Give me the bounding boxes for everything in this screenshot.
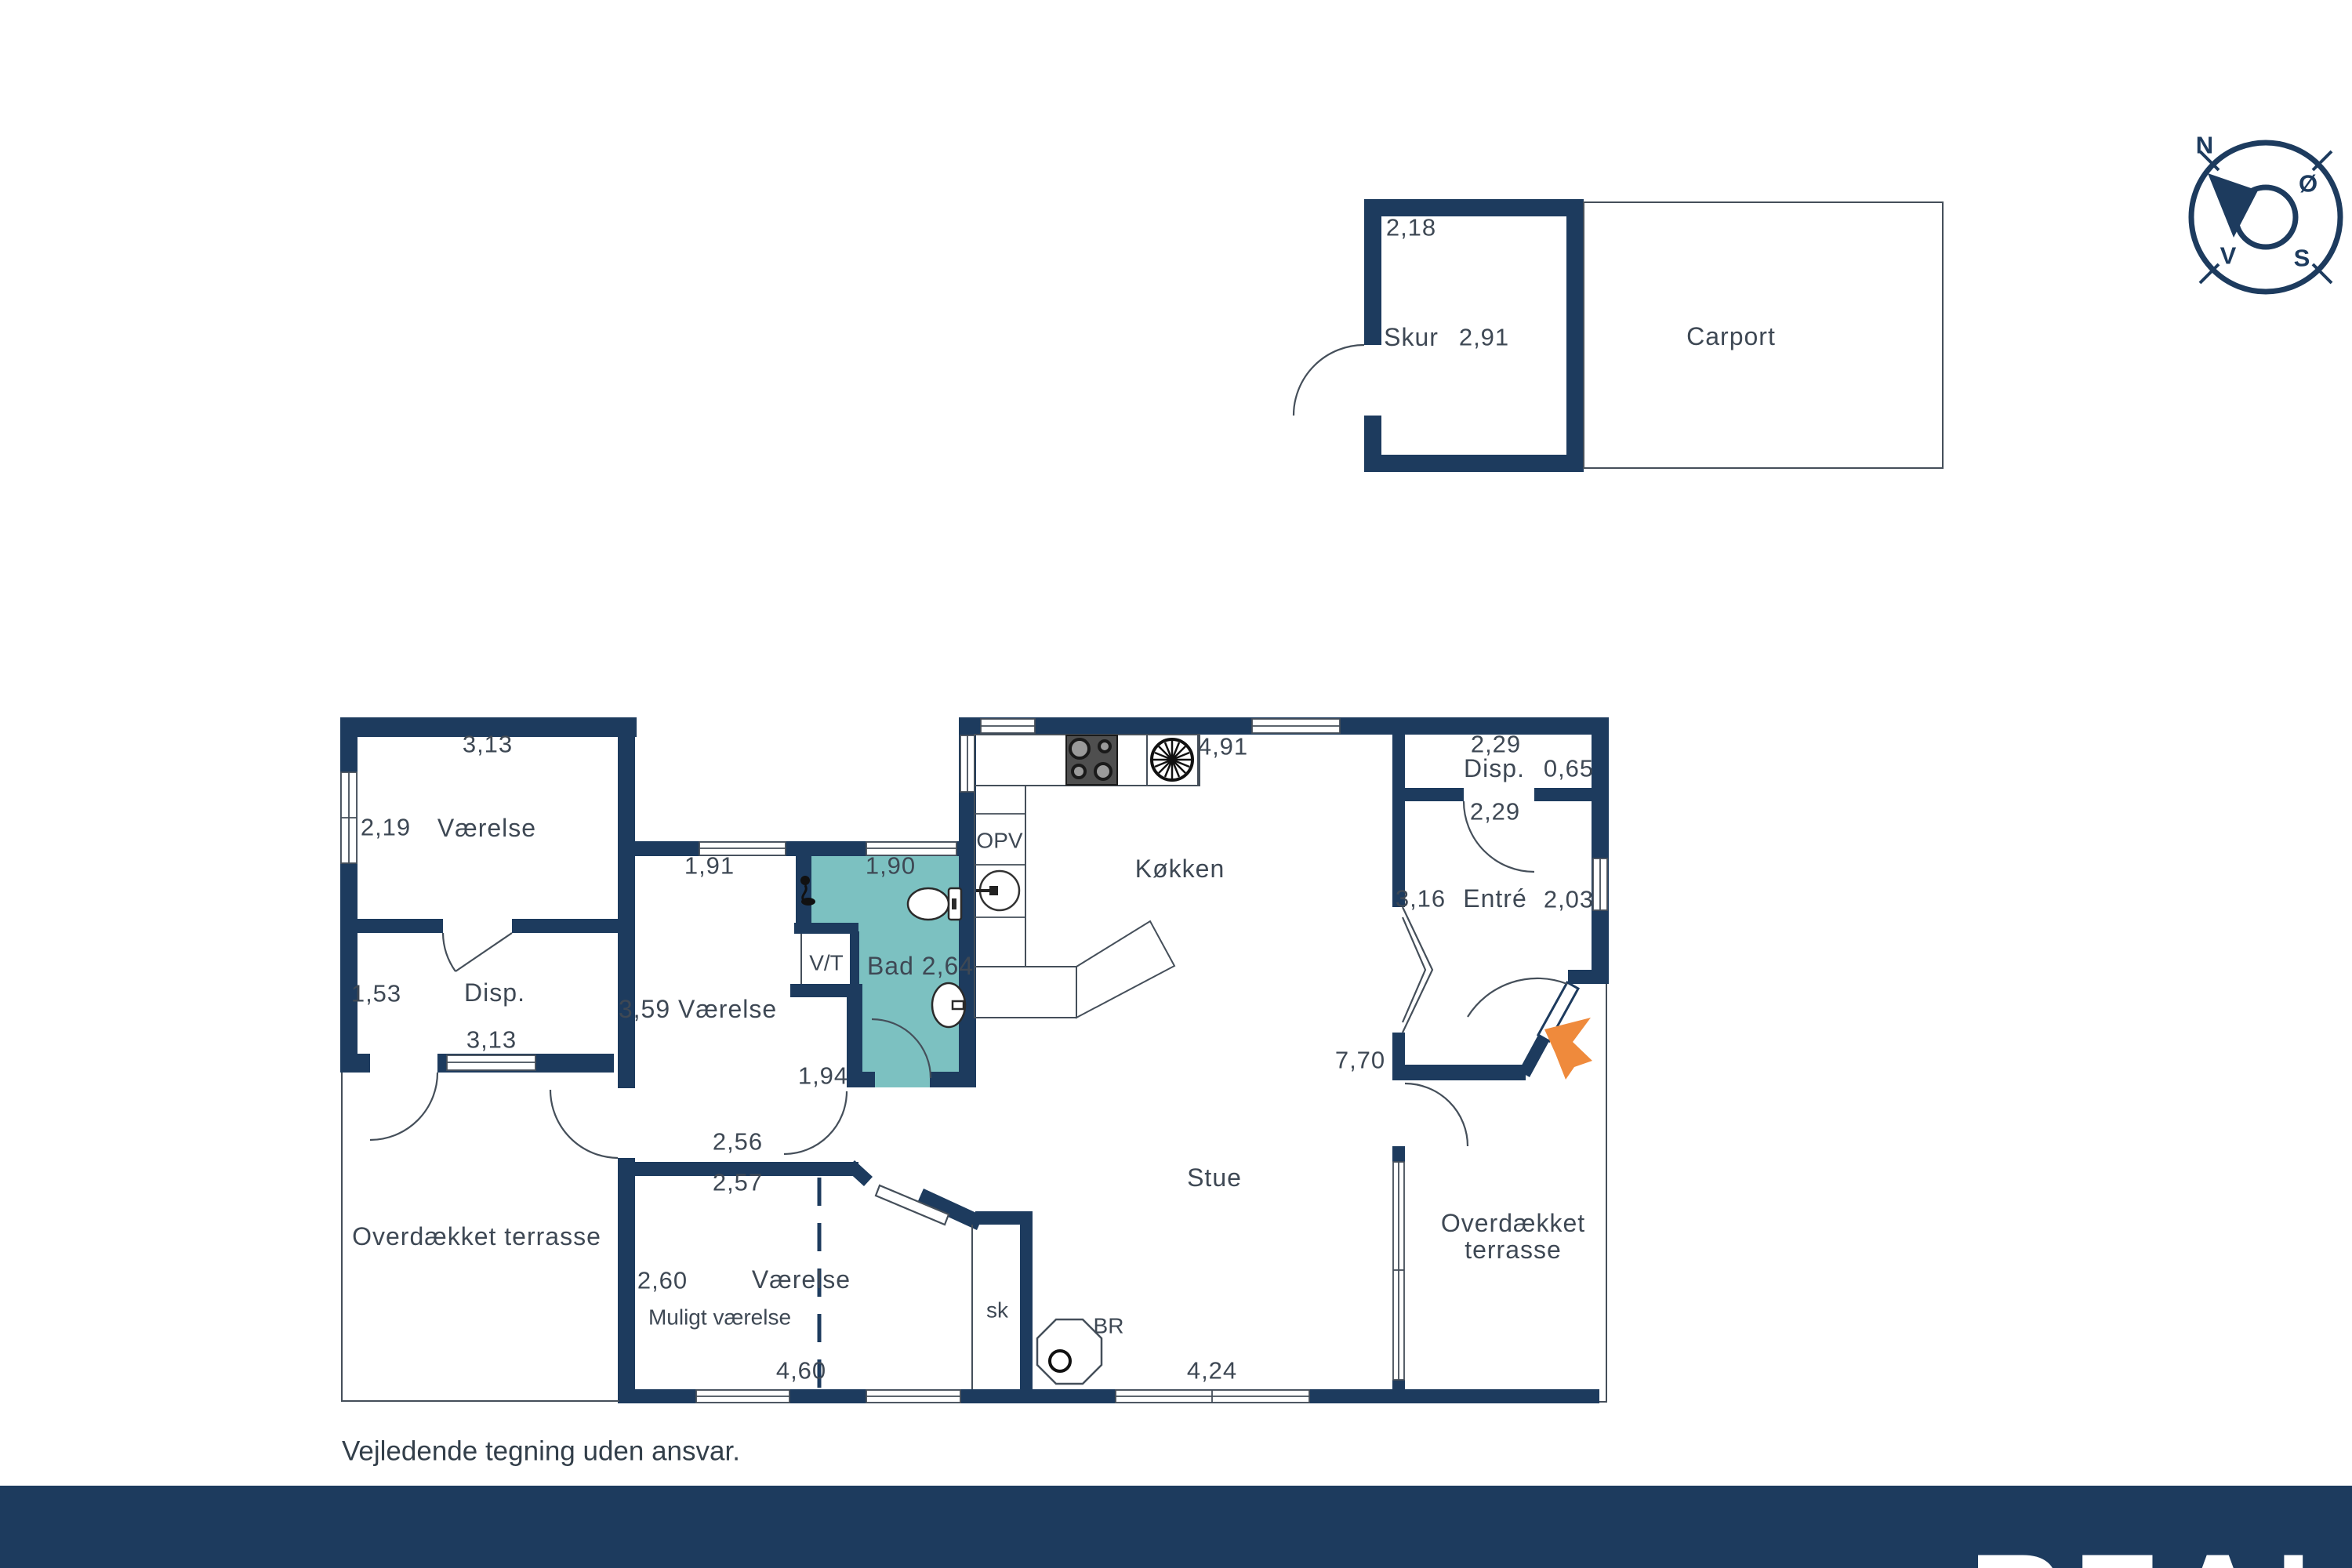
window-kitchen-top-right <box>1252 719 1340 733</box>
bedroom3-sub-label: Muligt værelse <box>648 1305 791 1330</box>
dishwasher-label: OPV <box>976 829 1022 853</box>
extractor-fan-icon <box>1147 735 1198 786</box>
kitchen-peninsula-angled <box>1076 921 1174 1018</box>
terrace-right-label-line1: Overdækket <box>1441 1209 1585 1237</box>
bedroom3-dim-left: 2,60 <box>637 1267 688 1294</box>
closet-label: sk <box>986 1298 1009 1323</box>
folding-door-entry-inner <box>1403 917 1425 1022</box>
terrace-left-label: Overdækket terrasse <box>352 1222 601 1250</box>
bedroom2-label: 3,59 Værelse <box>619 995 777 1023</box>
kitchen-label: Køkken <box>1135 855 1225 883</box>
wood-stove-icon <box>1037 1319 1102 1384</box>
door-arc-storage1-terrace <box>370 1073 437 1140</box>
compass-east-label: Ø <box>2299 170 2318 198</box>
bedroom3-label: Værelse <box>752 1265 851 1294</box>
living-label: Stue <box>1187 1163 1242 1192</box>
bedroom3-dim-bottom: 4,60 <box>776 1357 826 1385</box>
entry-door-dim: 2,29 <box>1470 798 1520 826</box>
entry-label: Entré <box>1463 884 1526 913</box>
brand-logo: REAL <box>1969 1527 2352 1568</box>
storage2-dim-right: 0,65 <box>1544 755 1594 782</box>
living-dim-bottom: 4,24 <box>1187 1357 1237 1385</box>
door-arc-shed <box>1294 345 1364 416</box>
storage1-dim-left: 1,53 <box>351 980 401 1007</box>
bedroom1-label: Værelse <box>437 814 536 842</box>
entry-dim-right: 2,03 <box>1544 886 1594 913</box>
shed-label: Skur <box>1384 323 1439 351</box>
window-entry-right <box>1593 858 1607 910</box>
door-arc-bedroom1 <box>443 933 456 971</box>
shed-dim-top: 2,18 <box>1386 214 1436 241</box>
bath-door-dim: 1,94 <box>798 1062 848 1090</box>
door-arc-bedroom2-terrace <box>550 1090 618 1158</box>
bedroom3-wall-dim-bottom: 2,57 <box>713 1169 763 1196</box>
window-storage1-bottom <box>447 1055 535 1070</box>
door-arc-stue-terrace <box>1405 1083 1468 1146</box>
window-kitchen-west <box>960 735 975 792</box>
storage2-label: Disp. <box>1464 754 1525 782</box>
compass-south-label: S <box>2294 245 2310 272</box>
wood-stove-label: BR <box>1094 1314 1124 1338</box>
window-bedroom1-left <box>341 772 357 863</box>
carport-label: Carport <box>1686 322 1776 350</box>
window-stue-bottom <box>1116 1390 1309 1403</box>
toilet-icon <box>908 888 961 920</box>
door-leaf-bedroom1 <box>456 933 512 971</box>
compass-rose-icon: N Ø S V <box>2191 132 2340 292</box>
bath-dim-top: 1,90 <box>866 852 916 880</box>
terrace-right-label-line2: terrasse <box>1465 1236 1562 1264</box>
storage1-dim-bottom: 3,13 <box>466 1026 517 1054</box>
utility-label: V/T <box>809 951 844 975</box>
floorplan-canvas: N Ø S V 2,18 Skur 2,91 Carport 3,13 2,19… <box>0 0 2352 1568</box>
compass-north-label: N <box>2196 132 2213 159</box>
door-arc-hallway <box>784 1091 847 1154</box>
window-bedroom3-bottom-right <box>866 1390 960 1403</box>
terrace-right-outline <box>1599 984 1606 1402</box>
washbasin-icon <box>932 983 965 1027</box>
bedroom2-dim-top: 1,91 <box>684 852 735 880</box>
window-kitchen-top-left <box>981 719 1035 733</box>
window-bedroom3-bottom-left <box>696 1390 789 1403</box>
bedroom1-dim-top: 3,13 <box>463 731 513 758</box>
kitchen-sink-icon <box>976 871 1019 910</box>
bedroom3-wall-dim-top: 2,56 <box>713 1128 763 1156</box>
hob-icon <box>1066 735 1117 785</box>
storage1-label: Disp. <box>464 978 525 1007</box>
kitchen-dim-top: 4,91 <box>1198 733 1248 760</box>
bath-label: Bad 2,64 <box>867 952 974 980</box>
kitchen-peninsula <box>975 967 1076 1018</box>
compass-west-label: V <box>2220 242 2237 270</box>
disclaimer-text: Vejledende tegning uden ansvar. <box>342 1436 740 1467</box>
shed-dim-right: 2,91 <box>1459 324 1509 351</box>
entry-dim-left: 3,16 <box>1396 885 1446 913</box>
window-stue-east <box>1393 1162 1404 1380</box>
bedroom1-dim-left: 2,19 <box>361 814 411 841</box>
living-dim-left: 7,70 <box>1335 1047 1385 1074</box>
